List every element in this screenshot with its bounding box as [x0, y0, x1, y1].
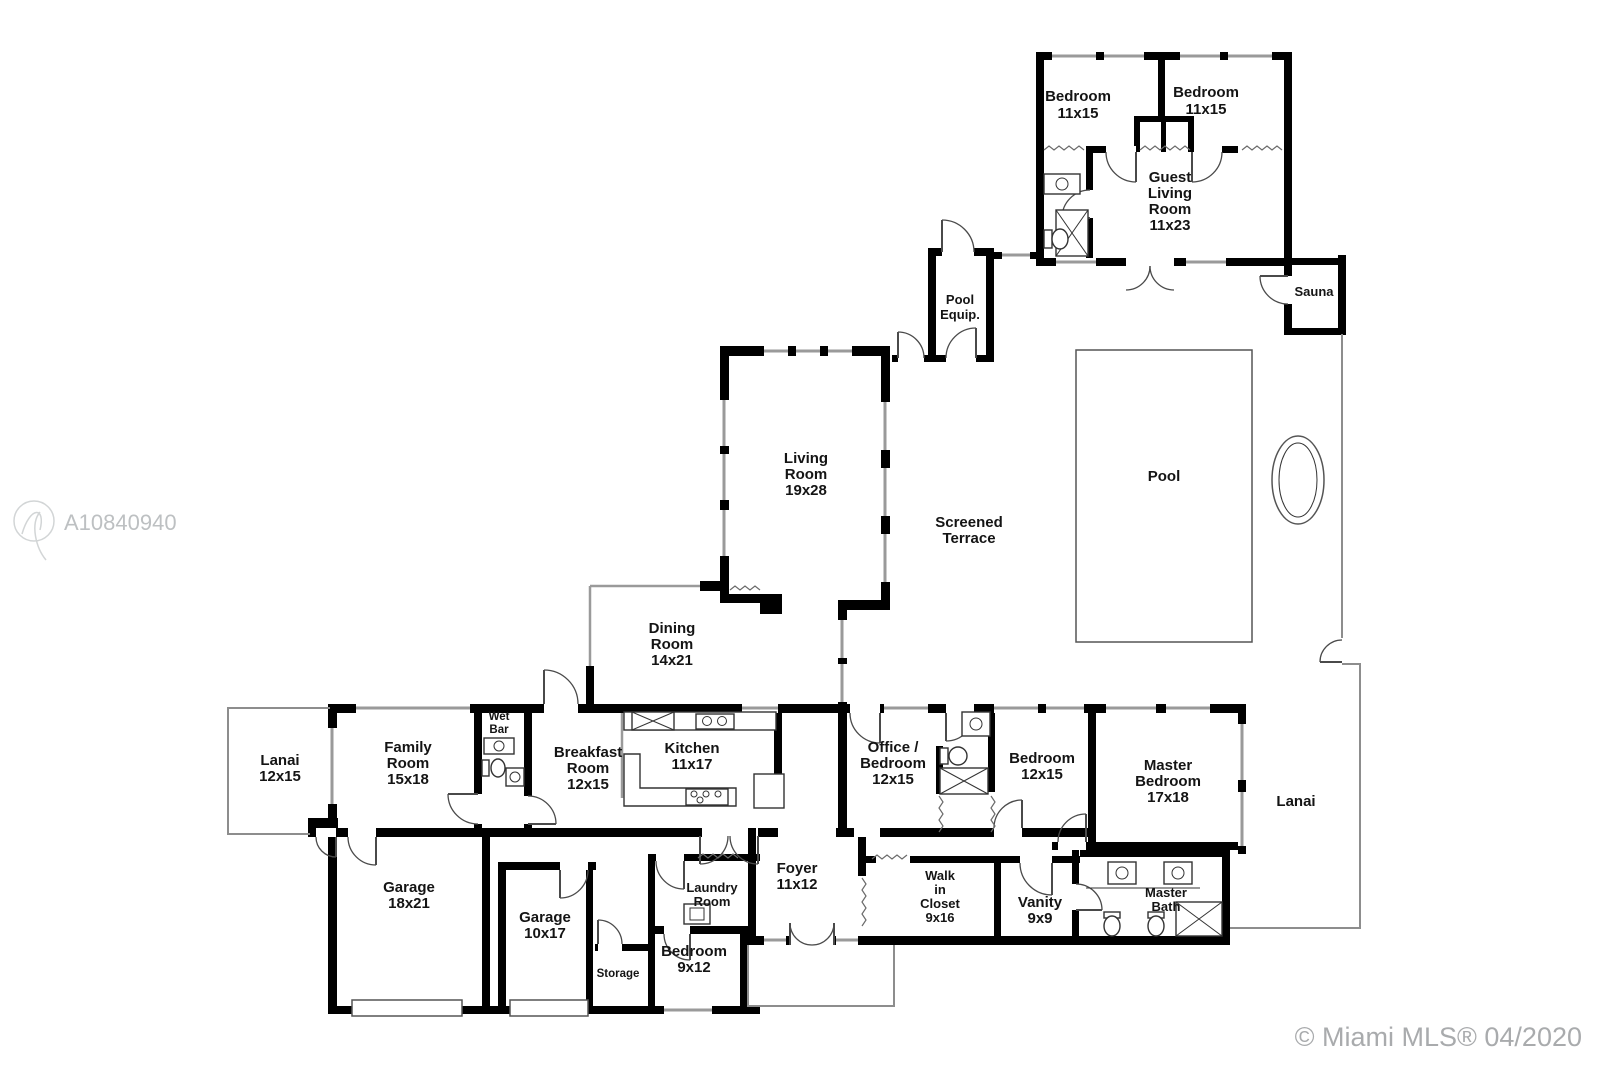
room-label-master-bedroom: MasterBedroom17x18	[1135, 757, 1201, 806]
svg-text:Breakfast: Breakfast	[554, 744, 622, 761]
svg-text:15x18: 15x18	[387, 771, 429, 788]
svg-text:Room: Room	[651, 636, 694, 653]
svg-text:Garage: Garage	[383, 879, 435, 896]
svg-text:Bedroom: Bedroom	[1173, 84, 1239, 101]
room-label-guest-living: GuestLivingRoom11x23	[1148, 169, 1192, 234]
svg-text:Room: Room	[694, 894, 731, 909]
copyright-text: © Miami MLS® 04/2020	[1295, 1022, 1582, 1052]
room-label-sauna: Sauna	[1294, 284, 1334, 299]
svg-text:12x15: 12x15	[259, 768, 301, 785]
svg-text:12x15: 12x15	[1021, 766, 1063, 783]
svg-text:Bath: Bath	[1152, 899, 1181, 914]
svg-text:Equip.: Equip.	[940, 307, 980, 322]
svg-text:Master: Master	[1145, 885, 1187, 900]
room-label-office-bedroom: Office /Bedroom12x15	[860, 739, 926, 788]
svg-text:Terrace: Terrace	[942, 530, 995, 547]
svg-text:11x15: 11x15	[1186, 101, 1227, 118]
kitchen-pantry	[754, 774, 784, 808]
mls-logo-icon	[14, 501, 54, 541]
room-label-pool: Pool	[1148, 468, 1181, 485]
svg-text:Lanai: Lanai	[1276, 793, 1315, 810]
svg-text:17x18: 17x18	[1147, 789, 1189, 806]
svg-text:Bedroom: Bedroom	[661, 943, 727, 960]
svg-text:Lanai: Lanai	[260, 752, 299, 769]
svg-text:Bedroom: Bedroom	[1009, 750, 1075, 767]
svg-text:in: in	[934, 882, 946, 897]
room-label-wet-bar: WetBar	[489, 711, 510, 736]
svg-text:Guest: Guest	[1149, 169, 1192, 186]
room-label-dining-room: DiningRoom14x21	[649, 620, 696, 669]
svg-text:9x16: 9x16	[926, 910, 955, 925]
room-label-bedroom-12x15: Bedroom12x15	[1009, 750, 1075, 783]
svg-text:11x12: 11x12	[777, 876, 818, 893]
svg-text:Room: Room	[785, 466, 828, 483]
svg-text:10x17: 10x17	[524, 925, 566, 942]
room-label-storage: Storage	[597, 968, 640, 980]
svg-text:Sauna: Sauna	[1294, 284, 1334, 299]
svg-text:Laundry: Laundry	[686, 880, 738, 895]
guest-bath-fixtures	[1044, 174, 1088, 256]
svg-text:Walk: Walk	[925, 868, 956, 883]
svg-text:Living: Living	[1148, 185, 1192, 202]
svg-text:11x23: 11x23	[1150, 217, 1191, 234]
room-label-breakfast-room: BreakfastRoom12x15	[554, 744, 622, 793]
room-label-kitchen: Kitchen11x17	[664, 740, 719, 773]
svg-text:19x28: 19x28	[785, 482, 827, 499]
svg-text:Closet: Closet	[920, 896, 960, 911]
garage-door-1	[352, 1000, 462, 1016]
room-label-pool-equip: PoolEquip.	[940, 292, 980, 322]
cabana-bath-fixtures	[940, 712, 990, 794]
room-label-vanity: Vanity9x9	[1018, 894, 1063, 927]
room-label-guest-bedroom-1: Bedroom11x15	[1045, 88, 1111, 122]
svg-text:Pool: Pool	[946, 292, 974, 307]
svg-text:Foyer: Foyer	[777, 860, 818, 877]
svg-text:12x15: 12x15	[567, 776, 609, 793]
room-label-screened-terrace: ScreenedTerrace	[935, 514, 1003, 547]
svg-text:Dining: Dining	[649, 620, 696, 637]
svg-text:Kitchen: Kitchen	[664, 740, 719, 757]
svg-text:Room: Room	[567, 760, 610, 777]
wet-bar-fixtures	[482, 738, 524, 786]
floor-plan-drawing: Bedroom11x15 Bedroom11x15 GuestLivingRoo…	[0, 0, 1600, 1066]
room-label-walk-in-closet: WalkinCloset9x16	[920, 868, 960, 925]
svg-text:Family: Family	[384, 739, 432, 756]
room-label-garage-18x21: Garage18x21	[383, 879, 435, 912]
svg-text:Pool: Pool	[1148, 468, 1181, 485]
room-label-lanai-left: Lanai12x15	[259, 752, 301, 785]
svg-text:Screened: Screened	[935, 514, 1003, 531]
svg-text:Room: Room	[387, 755, 430, 772]
room-label-guest-bedroom-2: Bedroom11x15	[1173, 84, 1239, 118]
floor-plan-page: Bedroom11x15 Bedroom11x15 GuestLivingRoo…	[0, 0, 1600, 1066]
room-label-bedroom-9x12: Bedroom9x12	[661, 943, 727, 976]
garage-door-2	[510, 1000, 588, 1016]
room-label-living-room: LivingRoom19x28	[784, 450, 828, 499]
mls-id-text: A10840940	[64, 510, 177, 535]
svg-text:Bedroom: Bedroom	[1135, 773, 1201, 790]
svg-text:14x21: 14x21	[651, 652, 693, 669]
svg-text:Master: Master	[1144, 757, 1193, 774]
room-label-foyer: Foyer11x12	[777, 860, 818, 893]
svg-text:Bar: Bar	[489, 724, 509, 736]
spa-outer	[1272, 436, 1324, 524]
svg-text:Vanity: Vanity	[1018, 894, 1063, 911]
mls-watermark: A10840940	[14, 501, 177, 560]
svg-text:Office /: Office /	[868, 739, 920, 756]
room-label-garage-10x17: Garage10x17	[519, 909, 571, 942]
svg-text:18x21: 18x21	[388, 895, 430, 912]
svg-text:Living: Living	[784, 450, 828, 467]
svg-text:12x15: 12x15	[872, 771, 914, 788]
svg-text:11x15: 11x15	[1058, 105, 1099, 122]
room-label-laundry-room: LaundryRoom	[686, 880, 738, 909]
svg-text:11x17: 11x17	[672, 756, 713, 773]
room-label-lanai-right: Lanai	[1276, 793, 1315, 810]
svg-text:Bedroom: Bedroom	[1045, 88, 1111, 105]
room-label-family-room: FamilyRoom15x18	[384, 739, 432, 788]
svg-text:Wet: Wet	[489, 711, 510, 723]
mls-logo-swirl	[22, 512, 46, 560]
svg-text:Storage: Storage	[597, 968, 640, 980]
svg-text:9x12: 9x12	[677, 959, 710, 976]
svg-text:Bedroom: Bedroom	[860, 755, 926, 772]
svg-text:Garage: Garage	[519, 909, 571, 926]
pool-outline	[1076, 350, 1252, 642]
svg-text:Room: Room	[1149, 201, 1192, 218]
svg-text:9x9: 9x9	[1027, 910, 1052, 927]
front-porch	[748, 945, 894, 1006]
